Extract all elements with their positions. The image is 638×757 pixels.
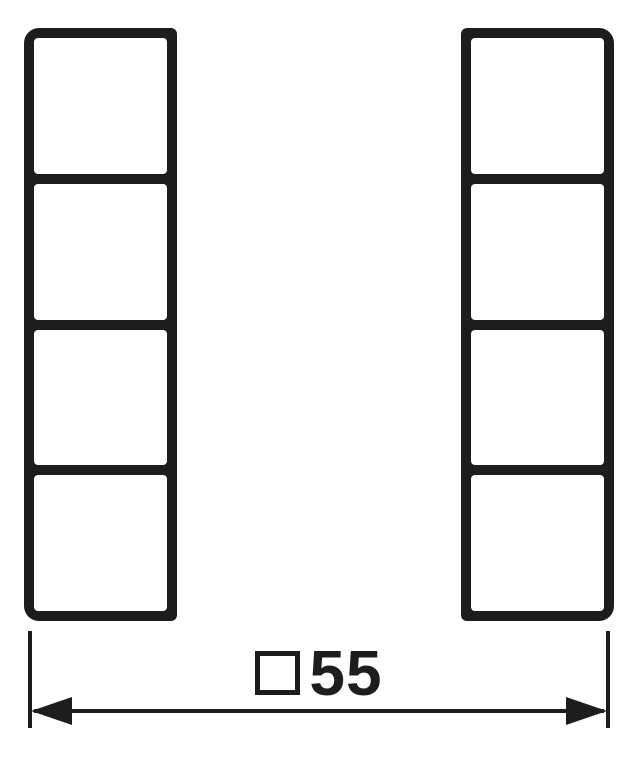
arrowhead-right-icon <box>566 697 607 725</box>
button-cell <box>34 184 167 320</box>
button-cell <box>471 38 604 174</box>
button-cell <box>34 475 167 611</box>
button-cell <box>471 475 604 611</box>
dimension-drawing: 55 <box>0 0 638 757</box>
square-symbol-icon <box>255 651 300 695</box>
left-button-column <box>24 28 177 621</box>
dimension-line <box>34 709 604 713</box>
dimension-value: 55 <box>309 649 382 697</box>
button-cell <box>471 184 604 320</box>
button-cell <box>34 38 167 174</box>
button-cell <box>34 330 167 466</box>
button-cell <box>471 330 604 466</box>
dimension-label: 55 <box>0 649 638 697</box>
arrowhead-left-icon <box>31 697 72 725</box>
right-button-column <box>461 28 614 621</box>
